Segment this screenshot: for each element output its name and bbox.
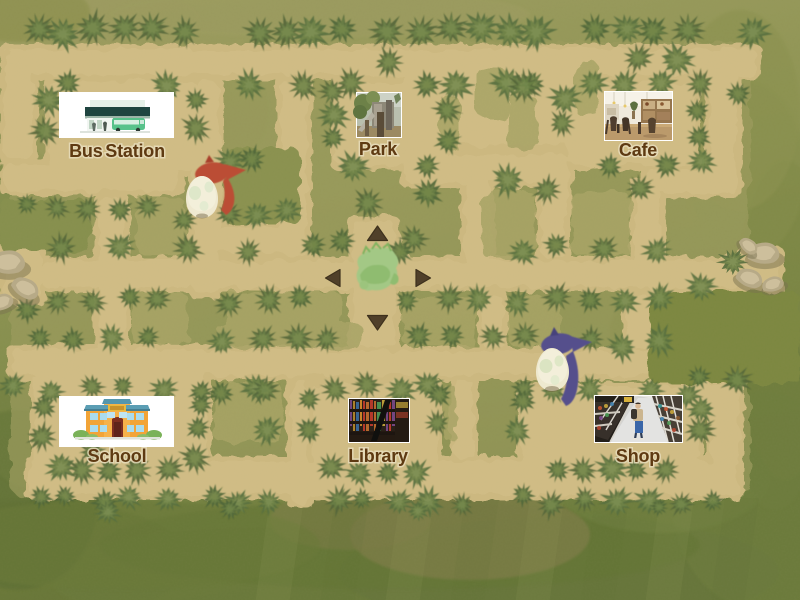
svg-text:School: School [88, 446, 147, 466]
svg-text:Park: Park [359, 139, 398, 159]
svg-text:Bus Station: Bus Station [69, 141, 165, 161]
svg-text:Shop: Shop [616, 446, 660, 466]
svg-text:Cafe: Cafe [619, 140, 657, 160]
svg-text:Library: Library [348, 446, 408, 466]
